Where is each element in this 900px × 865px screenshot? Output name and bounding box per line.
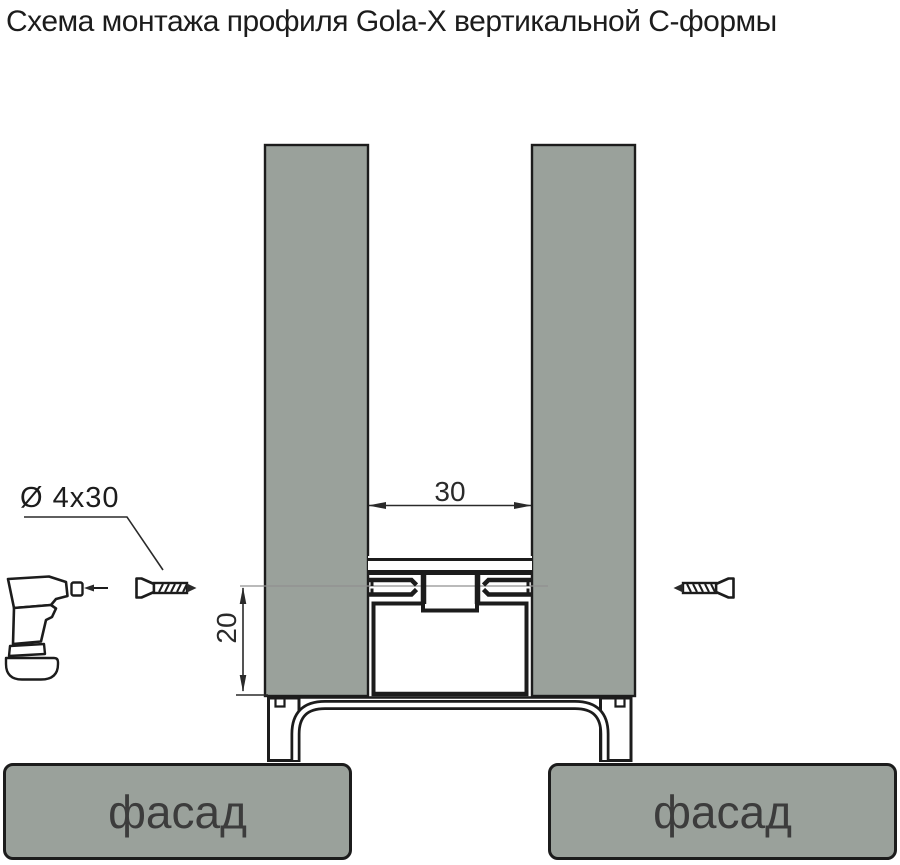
panel-right	[532, 145, 635, 696]
facade-box-left: фасад	[3, 763, 352, 860]
facade-label-right: фасад	[653, 785, 792, 839]
profile-clip-left	[369, 571, 424, 604]
dimension-20-value: 20	[211, 598, 241, 658]
facade-label-left: фасад	[108, 785, 247, 839]
page-title: Схема монтажа профиля Gola-X вертикально…	[6, 5, 896, 38]
profile-center-box	[372, 602, 529, 694]
screw-size-label: Ø 4x30	[20, 482, 120, 515]
dimension-30-value: 30	[390, 476, 510, 508]
profile-bottom-bridge	[268, 698, 632, 761]
panel-left	[265, 145, 368, 696]
profile-clip-right	[478, 571, 532, 604]
screw-icon-right	[674, 579, 734, 598]
leader-line	[24, 517, 163, 570]
screw-icon-left	[137, 579, 197, 598]
drill-icon	[6, 577, 108, 680]
facade-box-right: фасад	[548, 763, 897, 860]
diagram-canvas	[0, 0, 900, 865]
